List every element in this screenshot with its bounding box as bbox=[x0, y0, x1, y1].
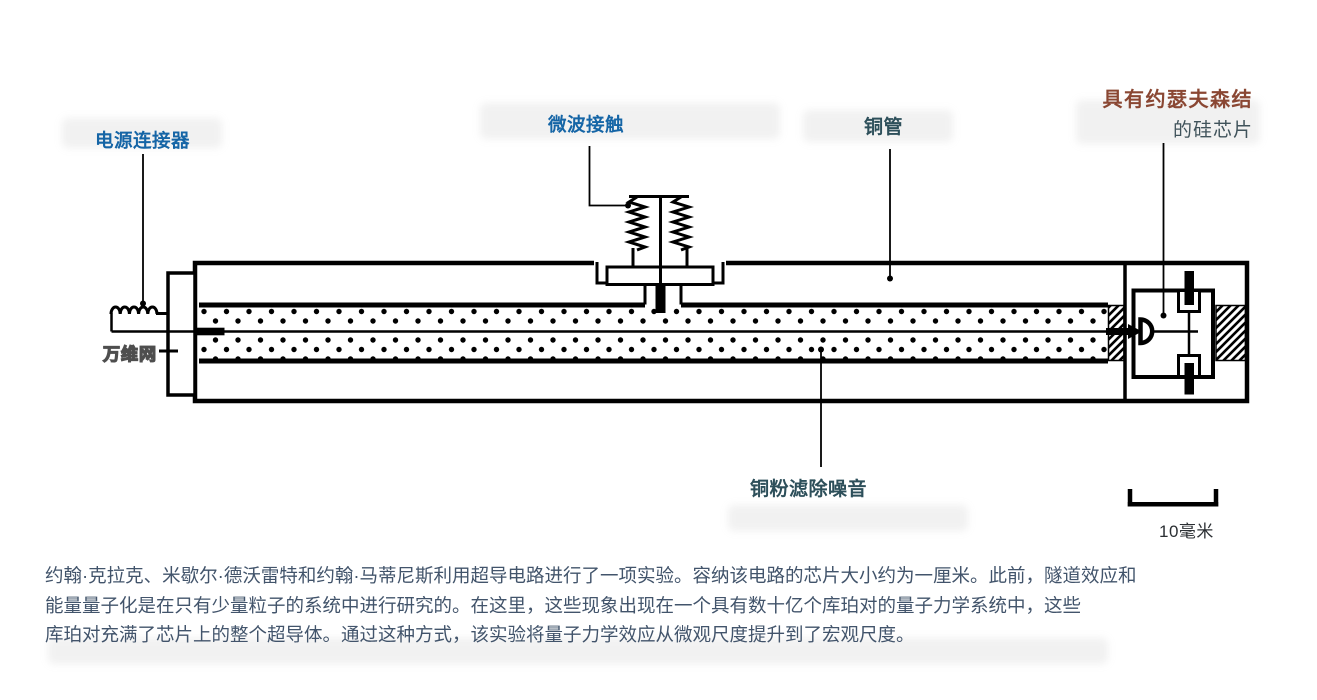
power-connector-coil bbox=[111, 307, 168, 332]
label-copper-tube: 铜管 bbox=[864, 112, 903, 139]
caption-line: 库珀对充满了芯片上的整个超导体。通过这种方式，该实验将量子力学效应从微观尺度提升… bbox=[45, 620, 1137, 650]
caption-line: 约翰·克拉克、米歇尔·德沃雷特和约翰·马蒂尼斯利用超导电路进行了一项实验。容纳该… bbox=[45, 561, 1137, 591]
watermark-text: 万维网 bbox=[103, 340, 157, 365]
label-silicon-chip: 具有约瑟夫森结 的硅芯片 bbox=[1103, 83, 1254, 142]
scale-bar bbox=[1128, 489, 1218, 507]
connector-spring-right bbox=[673, 197, 689, 250]
left-flange bbox=[168, 273, 195, 395]
hatch-block-right bbox=[1216, 306, 1246, 361]
label-copper-powder: 铜粉滤除噪音 bbox=[750, 474, 867, 501]
label-power-connector: 电源连接器 bbox=[95, 127, 190, 153]
label-microwave-contact: 微波接触 bbox=[548, 111, 624, 137]
connector-spring-left bbox=[629, 197, 645, 250]
coax-terminal bbox=[1141, 320, 1153, 344]
scale-bar-label: 10毫米 bbox=[1159, 517, 1214, 542]
figure-canvas: 电源连接器 微波接触 铜管 具有约瑟夫森结 的硅芯片 铜粉滤除噪音 万维网 10… bbox=[0, 0, 1317, 700]
caption-line: 能量量子化是在只有少量粒子的系统中进行研究的。在这里，这些现象出现在一个具有数十… bbox=[45, 591, 1137, 621]
label-silicon-chip-line2: 的硅芯片 bbox=[1103, 115, 1254, 142]
label-josephson-junction: 具有约瑟夫森结 bbox=[1103, 83, 1254, 112]
caption-paragraph: 约翰·克拉克、米歇尔·德沃雷特和约翰·马蒂尼斯利用超导电路进行了一项实验。容纳该… bbox=[45, 561, 1137, 650]
copper-tube-outline bbox=[195, 255, 1247, 401]
